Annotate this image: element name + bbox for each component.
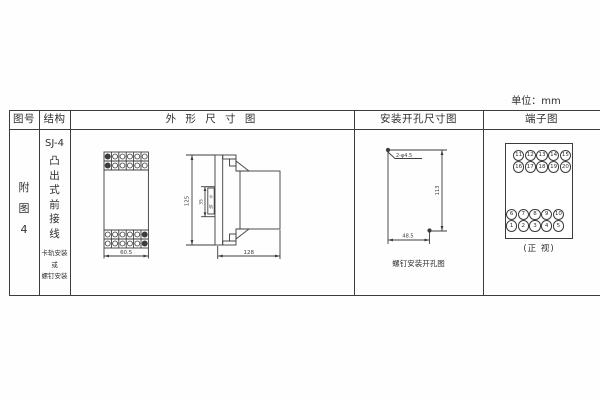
terminal-circle: 3: [529, 220, 540, 231]
terminal-row: 1 2 3 4 5: [506, 220, 564, 231]
hole-spec-label: 2-φ4.5: [396, 153, 412, 159]
unit-label: 单位：mm: [500, 92, 572, 107]
side-view-drawing: 125 35 卡 轨: [185, 155, 281, 259]
model-label: SJ-4: [39, 138, 70, 149]
terminal-circle: 11: [513, 150, 524, 161]
rail-label-char: 卡: [209, 193, 213, 200]
front-width-dim: 60.5: [120, 250, 133, 256]
mounting-hole-drawing: 2-φ4.5 113 48.5: [354, 130, 483, 295]
structure-type-char: 凸: [39, 154, 70, 169]
side-height-dim: 125: [185, 195, 191, 206]
terminal-bottom-group: 6 7 8 9 10 1 2 3 4 5: [506, 209, 564, 233]
terminal-circle: 10: [553, 209, 564, 220]
horizontal-hole-dim: 48.5: [402, 234, 413, 240]
terminal-circle: 5: [553, 220, 564, 231]
structure-type: 凸 出 式 前 接 线: [39, 154, 70, 241]
vertical-hole-dim: 113: [435, 186, 441, 196]
terminal-diagram-caption: (正 视): [505, 242, 573, 254]
structure-type-char: 前: [39, 198, 70, 213]
terminal-circle: 16: [513, 161, 524, 172]
mounting-type-line: 或: [39, 260, 70, 272]
inner-height-dim: 35: [198, 199, 204, 205]
mounting-type-note: 卡轨安装 或 螺钉安装: [39, 248, 70, 283]
terminal-circle: 14: [548, 150, 559, 161]
terminal-circle: 7: [518, 209, 529, 220]
mounting-type-line: 螺钉安装: [39, 271, 70, 283]
structure-type-char: 出: [39, 169, 70, 184]
table-bottom-border: [9, 295, 600, 296]
structure-type-char: 接: [39, 212, 70, 227]
col-header-mounting: 安装开孔尺寸图: [354, 110, 483, 129]
terminal-circle: 19: [548, 161, 559, 172]
divider-mounting-terminal: [483, 110, 484, 296]
structure-type-char: 线: [39, 227, 70, 242]
outline-dimension-drawing: 60.5 125: [70, 130, 354, 295]
terminal-row: 6 7 8 9 10: [506, 209, 564, 220]
figure-number-char: 4: [9, 219, 39, 240]
terminal-circle: 1: [506, 220, 517, 231]
terminal-circle: 8: [529, 209, 540, 220]
terminal-circle: 9: [541, 209, 552, 220]
col-header-fig-no: 图号: [9, 110, 39, 129]
mounting-type-line: 卡轨安装: [39, 248, 70, 260]
drawing-sheet: 单位：mm 图号 结构 外 形 尺 寸 图 安装开孔尺寸图 端子图 附 图 4 …: [0, 0, 600, 400]
terminal-row: 16 17 18 19 20: [513, 161, 571, 172]
terminal-circle: 15: [560, 150, 571, 161]
depth-dim: 128: [244, 250, 255, 256]
terminal-circle: 12: [525, 150, 536, 161]
col-header-terminal: 端子图: [483, 110, 600, 129]
terminal-circle: 13: [536, 150, 547, 161]
figure-number: 附 图 4: [9, 177, 39, 240]
terminal-circle: 18: [536, 161, 547, 172]
terminal-circle: 2: [518, 220, 529, 231]
mounting-drawing-caption: 螺钉安装开孔图: [354, 258, 483, 269]
structure-type-char: 式: [39, 183, 70, 198]
terminal-top-group: 11 12 13 14 15 16 17 18 19 20: [513, 150, 571, 174]
rail-label-char: 轨: [209, 203, 214, 210]
col-header-structure: 结构: [39, 110, 70, 129]
figure-number-char: 附: [9, 177, 39, 198]
terminal-circle: 4: [541, 220, 552, 231]
terminal-circle: 17: [525, 161, 536, 172]
col-header-outline: 外 形 尺 寸 图: [70, 110, 354, 129]
figure-number-char: 图: [9, 198, 39, 219]
terminal-row: 11 12 13 14 15: [513, 150, 571, 161]
terminal-circle: 20: [560, 161, 571, 172]
terminal-circle: 6: [506, 209, 517, 220]
front-view-drawing: 60.5: [104, 152, 148, 259]
